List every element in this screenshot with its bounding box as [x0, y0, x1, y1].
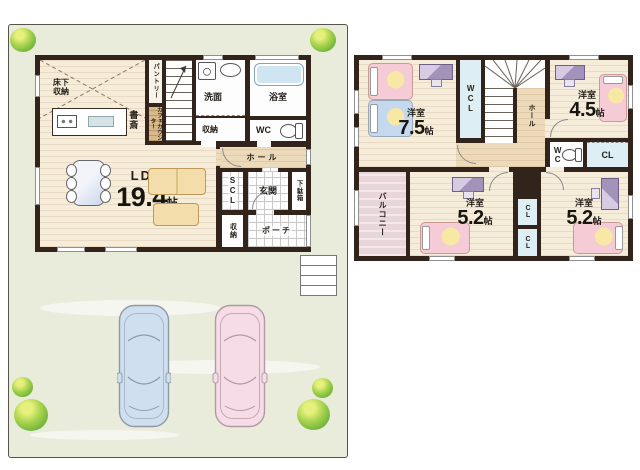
sofa-ottoman-icon — [153, 203, 199, 226]
bedroom-5-2-west-size: 洋室 5.2帖 — [446, 198, 504, 228]
desk-icon — [555, 65, 585, 80]
toilet-tank-icon — [295, 123, 303, 139]
window — [354, 90, 359, 114]
shoe-cabinet-label: 下駄箱 — [295, 180, 302, 202]
floor-plan-canvas: 床下収納 書斎 LDK 19.4帖 — [0, 0, 640, 470]
bed-headboard — [370, 104, 378, 133]
chair-icon — [100, 177, 111, 190]
stair-direction-arrow — [166, 60, 192, 100]
garden-highlight — [30, 430, 180, 440]
window — [203, 55, 223, 60]
window — [306, 149, 311, 165]
chair-icon — [66, 164, 77, 177]
desk-icon — [419, 64, 453, 80]
desk-stand — [564, 79, 575, 87]
closet-east: CL — [587, 142, 628, 167]
door-opening — [201, 141, 216, 147]
room-size-value: 5.2 — [566, 207, 592, 229]
bathroom-label: 浴室 — [269, 92, 287, 102]
door-opening — [216, 149, 222, 166]
window — [354, 127, 359, 147]
window — [354, 190, 359, 226]
bush-icon — [12, 377, 33, 397]
washroom-storage-label: 収納 — [202, 125, 218, 134]
staircase-1f — [166, 60, 192, 141]
balcony-label: バルコニー — [378, 192, 387, 237]
ldk-room: LDK 19.4帖 — [40, 145, 216, 247]
wc-2f: WC — [550, 142, 583, 167]
storage-1f: 収納 — [222, 215, 243, 247]
room-size-unit: 帖 — [425, 126, 434, 136]
window — [382, 55, 412, 60]
bush-icon — [10, 28, 36, 52]
chair-icon — [100, 164, 111, 177]
walk-in-closet: WCL — [460, 60, 481, 138]
door-opening — [256, 210, 274, 215]
window — [35, 167, 40, 205]
window — [628, 85, 633, 109]
kitchen-study-area: 床下収納 書斎 — [40, 60, 145, 145]
hall-2f-label: ホール — [527, 104, 535, 128]
chair-icon — [66, 190, 77, 203]
underfloor-storage-label: 床下収納 — [52, 78, 70, 96]
shoe-cabinet: 下駄箱 — [292, 172, 306, 210]
first-floor-plan: 床下収納 書斎 LDK 19.4帖 — [35, 55, 311, 252]
closet-east-label: CL — [602, 150, 614, 160]
cafe-counter: カフェカウンター — [149, 107, 162, 141]
second-floor-plan: 洋室 7.5帖 WCL ホール 洋室 — [354, 55, 633, 261]
door-opening — [262, 168, 278, 172]
closet-mid-lower: CL — [518, 229, 537, 256]
scl-label: SCL — [228, 176, 237, 206]
bedroom-7-5-size: 洋室 7.5帖 — [387, 108, 445, 138]
toilet-tank-icon — [575, 148, 582, 162]
window — [429, 256, 455, 261]
kitchen-island-icon — [52, 108, 127, 136]
scl-closet: SCL — [222, 172, 243, 210]
bathtub-icon — [254, 63, 304, 86]
bed-icon — [368, 63, 413, 100]
bathroom: 浴室 — [250, 60, 306, 116]
porch: ポーチ — [248, 215, 306, 247]
bed-headboard — [615, 226, 623, 250]
washing-machine-icon — [198, 62, 216, 80]
wcl-label: WCL — [466, 84, 475, 114]
closet-mid-upper-label: CL — [523, 205, 531, 219]
bush-icon — [14, 399, 48, 431]
bed-headboard — [370, 67, 378, 96]
storage-1f-label: 収納 — [228, 223, 236, 239]
window — [306, 215, 311, 247]
pantry-label: パントリー — [152, 63, 159, 100]
hall-1f-label: ホール — [247, 153, 280, 162]
porch-label: ポーチ — [262, 226, 292, 235]
pantry: パントリー — [149, 60, 162, 103]
blue-car-icon — [117, 303, 171, 429]
stove-icon — [57, 115, 77, 128]
window — [57, 247, 85, 252]
study-label: 書斎 — [128, 110, 138, 130]
kitchen-sink-icon — [88, 116, 114, 127]
bush-icon — [297, 399, 330, 430]
closet-mid-upper: CL — [518, 199, 537, 225]
bed-headboard — [603, 76, 623, 84]
balcony: バルコニー — [359, 172, 406, 256]
room-size-value: 4.5 — [569, 99, 595, 121]
entrance-steps — [300, 255, 337, 296]
desk-stand — [431, 79, 442, 87]
window — [35, 75, 40, 97]
chair-icon — [66, 177, 77, 190]
bedroom-4-5-size: 洋室 4.5帖 — [558, 90, 616, 120]
room-size-value: 5.2 — [457, 207, 483, 229]
bush-icon — [310, 28, 336, 52]
window — [569, 55, 599, 60]
cafe-counter-label: カフェカウンター — [149, 107, 162, 141]
door-opening — [257, 141, 271, 147]
window — [569, 256, 595, 261]
chair-icon — [100, 190, 111, 203]
window — [255, 55, 299, 60]
washroom-storage: 収納 — [196, 118, 245, 141]
room-size-unit: 帖 — [596, 108, 605, 118]
wc-1f-label: WC — [256, 125, 271, 135]
wc-2f-label: WC — [553, 146, 562, 164]
window — [105, 247, 137, 252]
washroom: 洗面 — [196, 60, 245, 116]
hall-2f-corridor: ホール — [517, 88, 545, 143]
bush-icon — [312, 378, 333, 398]
bed-headboard — [422, 226, 430, 250]
stair-winder-lines — [485, 60, 545, 88]
bedroom-7-5: 洋室 7.5帖 — [359, 60, 456, 167]
closet-mid-lower-label: CL — [523, 236, 531, 250]
wc-1f: WC — [250, 120, 306, 141]
window — [628, 195, 633, 219]
room-size-unit: 帖 — [484, 216, 493, 226]
bedroom-5-2-east-size: 洋室 5.2帖 — [555, 198, 613, 228]
desk-icon — [452, 177, 484, 192]
room-size-unit: 帖 — [593, 216, 602, 226]
room-size-value: 7.5 — [398, 117, 424, 139]
pink-car-icon — [212, 303, 268, 429]
staircase-2f-run — [485, 88, 513, 143]
basin-icon — [220, 63, 241, 77]
washroom-label: 洗面 — [204, 92, 222, 102]
staircase-2f-winders — [485, 60, 545, 88]
sofa-icon — [148, 168, 206, 195]
